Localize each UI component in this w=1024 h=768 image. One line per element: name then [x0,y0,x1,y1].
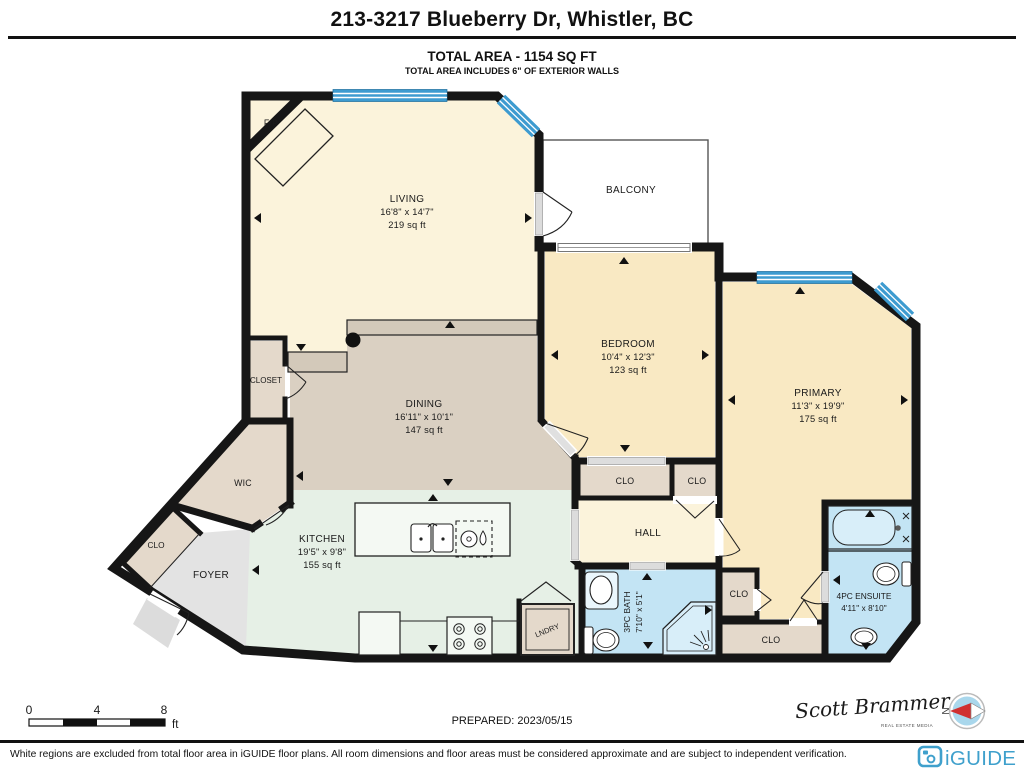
dining-area: 147 sq ft [405,425,443,435]
balcony-label: BALCONY [606,185,656,196]
living-area: 219 sq ft [388,220,426,230]
ensuite-dims: 4'11" x 8'10" [841,604,887,613]
clo-bottom-label: CLO [762,635,781,645]
step-lower [288,352,347,372]
hall-label: HALL [635,528,661,539]
disclaimer-text: White regions are excluded from total fl… [10,749,890,760]
clo-hall-label: CLO [688,476,707,486]
bedroom-area: 123 sq ft [609,365,647,375]
clo-bedroom-label: CLO [616,476,635,486]
ensuite-label: 4PC ENSUITE [837,591,892,601]
kitchen-dims: 19'5" x 9'8" [298,547,346,557]
toilet-tank [584,627,593,654]
room-fills [118,97,912,658]
living-dims: 16'8" x 14'7" [380,207,434,217]
step-upper [347,320,537,335]
primary-label: PRIMARY [794,388,842,399]
dining-dims: 16'11" x 10'1" [395,412,453,422]
footer-divider [0,740,1024,743]
kitchen-label: KITCHEN [299,534,345,545]
clo-mid-label: CLO [730,589,749,599]
bedroom-label: BEDROOM [601,339,655,350]
clo-foyer-label: CLO [147,540,165,550]
wic-label: WIC [234,478,252,488]
primary-dims: 11'3" x 19'9" [792,401,845,411]
iguide-logo: iGUIDE [919,747,1016,768]
fireplace-label: F/P [264,118,278,128]
fridge [359,612,400,655]
closet-label: CLOSET [250,376,282,385]
floor-plan-page: 213-3217 Blueberry Dr, Whistler, BC TOTA… [0,0,1024,768]
bath-sink [590,576,612,604]
primary-area: 175 sq ft [799,414,837,424]
bedroom-dims: 10'4" x 12'3" [601,352,655,362]
iguide-brand-text: iGUIDE [945,747,1016,768]
foyer-label: FOYER [193,570,229,581]
bath-label: 3PC BATH [622,591,632,632]
stove [447,617,492,655]
bath-dims: 7'10" x 5'1" [635,591,644,633]
signature-subtext: REAL ESTATE MEDIA [872,723,942,728]
ensuite-toilet-tank [902,562,911,586]
living-label: LIVING [390,194,425,205]
floor-plan-svg: LIVING 16'8" x 14'7" 219 sq ft BALCONY B… [0,0,1024,768]
kitchen-area: 155 sq ft [303,560,341,570]
dining-label: DINING [406,399,443,410]
bathtub-inner [833,510,895,545]
column [346,333,361,348]
